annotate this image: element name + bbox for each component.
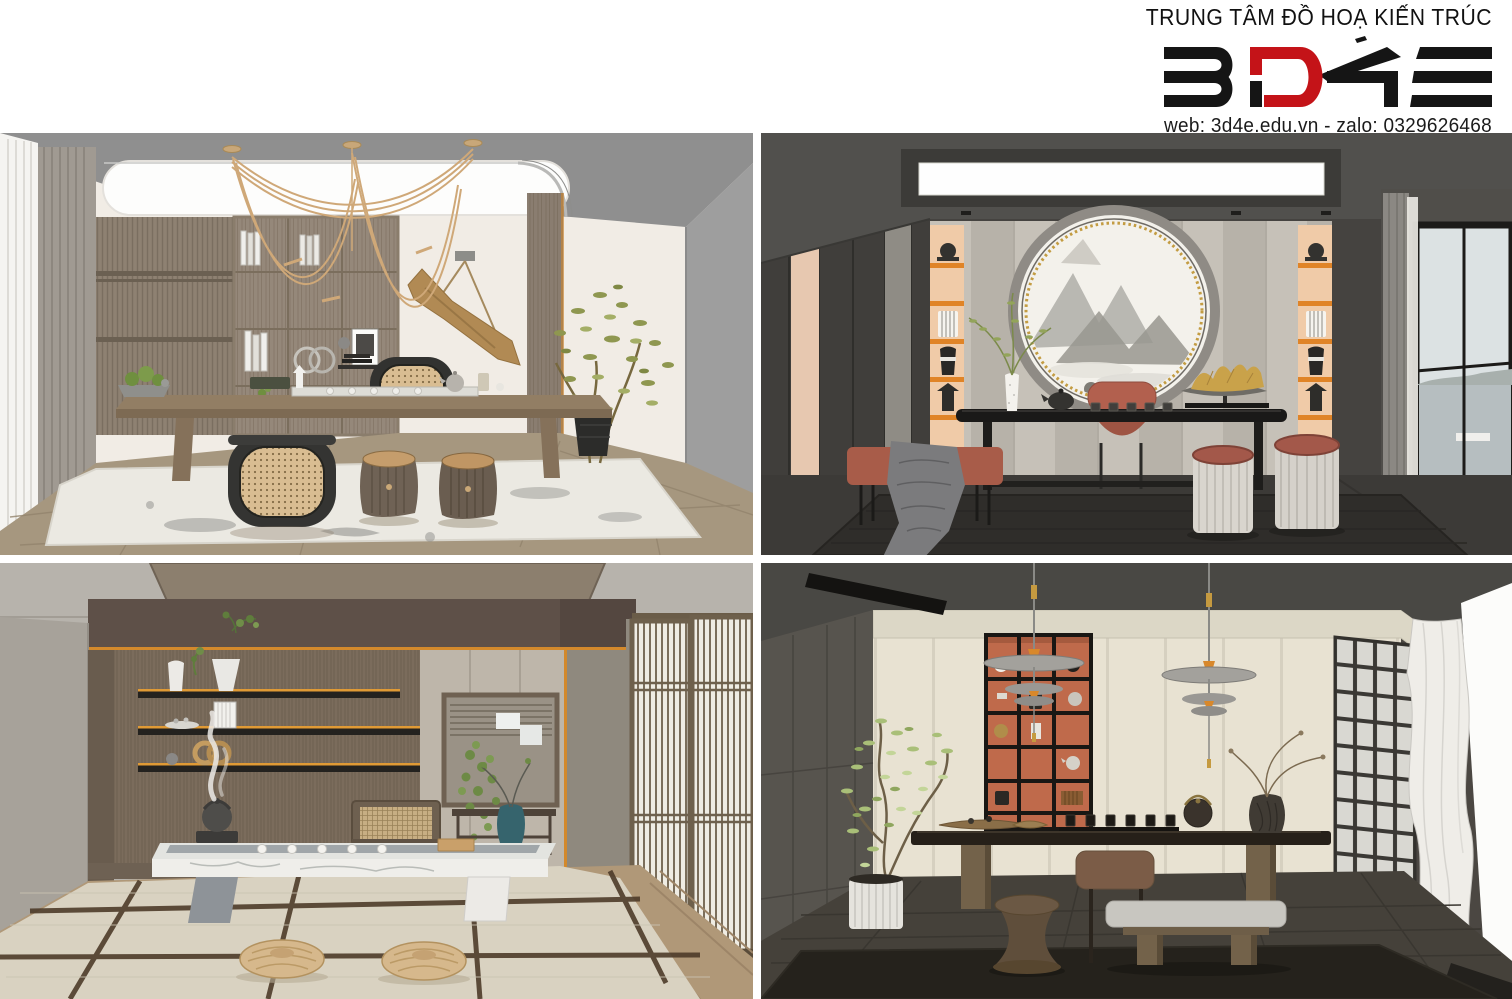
render-modern-tea-space [761, 563, 1512, 999]
bl-room [0, 563, 753, 999]
render-tea-study-light [0, 133, 753, 555]
bl-chair [352, 801, 440, 845]
tl-chair-front [228, 435, 336, 527]
br-room [761, 563, 1512, 999]
bl-tatami [0, 866, 700, 999]
brand-logo: 3D4E [1012, 33, 1492, 114]
tr-curtain [1383, 193, 1409, 523]
render-tatami-tea-room [0, 563, 753, 999]
tl-room [0, 133, 753, 555]
logo-3d4e-icon [1162, 33, 1492, 109]
poster-canvas: TRUNG TÂM ĐỒ HOẠ KIẾN TRÚC 3D4E web: 3d4 [0, 0, 1512, 999]
tr-room [761, 133, 1512, 555]
bl-floor [0, 865, 753, 999]
tl-led-light [103, 160, 572, 217]
brand-block: TRUNG TÂM ĐỒ HOẠ KIẾN TRÚC 3D4E web: 3d4 [1012, 4, 1492, 138]
bl-brown-band [88, 599, 636, 647]
render-tea-room-moon-niche [761, 133, 1512, 555]
tr-niche-left [930, 225, 964, 475]
brand-title: TRUNG TÂM ĐỒ HOẠ KIẾN TRÚC [1050, 4, 1492, 31]
br-vase [1249, 794, 1285, 833]
bl-teal-vase [497, 804, 525, 843]
